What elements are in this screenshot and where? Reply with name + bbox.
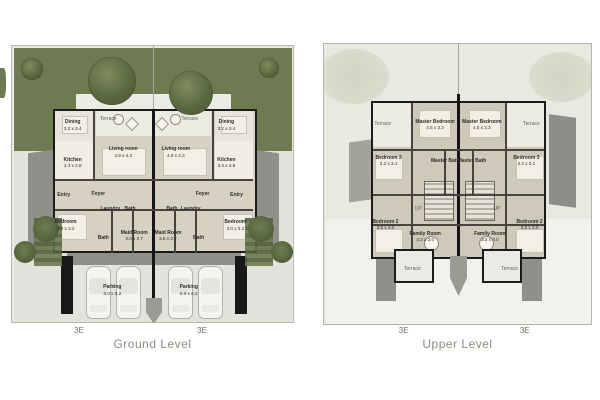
- room-label: Bedroom 33.2 x 3.1: [513, 155, 539, 167]
- room-label: Entry: [57, 192, 70, 198]
- room-label: Bath: [98, 234, 109, 240]
- unit-marker: 3E: [74, 326, 84, 335]
- room-label: Kitchen3.3 x 2.8: [64, 157, 82, 169]
- room-label: Master Bedroom4.5 x 3.3: [462, 119, 501, 131]
- room-label: Foyer: [196, 191, 210, 197]
- upper-level-caption: Upper Level: [323, 337, 592, 351]
- room-label: UP: [415, 206, 422, 212]
- room-label: Bedroom 23.5 x 3.0: [517, 219, 543, 231]
- upper-level-plan: TerraceMaster Bedroom4.5 x 3.3Master Bed…: [323, 43, 592, 325]
- room-label: Maid Room3.5 x 2.7: [154, 230, 181, 242]
- room-label: Terrace: [182, 115, 199, 121]
- room-label: Living room4.9 x 4.3: [109, 146, 138, 158]
- room-label: Bath: [166, 206, 177, 212]
- room-labels-layer: TerraceTerraceDining3.2 x 3.4Dining3.2 x…: [12, 46, 293, 322]
- room-label: Terrace: [404, 266, 421, 272]
- room-label: Terrace: [501, 266, 518, 272]
- room-label: UP: [493, 206, 500, 212]
- unit-marker: 3E: [520, 326, 530, 335]
- edge-foliage: [0, 68, 6, 98]
- room-label: Master Bath: [458, 158, 487, 164]
- room-label: Foyer: [91, 191, 105, 197]
- room-label: Dining3.2 x 3.4: [218, 119, 236, 131]
- room-label: Bedroom 33.2 x 3.1: [376, 155, 402, 167]
- room-label: Bath: [124, 206, 135, 212]
- room-label: Parking6.0 x 6.2: [180, 284, 198, 296]
- room-label: Terrace: [523, 121, 540, 127]
- room-label: Family Room3.2 x 3.0: [409, 231, 440, 243]
- ground-level-plan: TerraceTerraceDining3.2 x 3.4Dining3.2 x…: [11, 45, 294, 323]
- room-label: Living room4.9 x 4.3: [162, 146, 191, 158]
- unit-marker: 3E: [197, 326, 207, 335]
- room-label: Kitchen3.3 x 2.8: [217, 157, 235, 169]
- room-label: Master Bath: [431, 158, 460, 164]
- unit-marker: 3E: [399, 326, 409, 335]
- ground-level-caption: Ground Level: [11, 337, 294, 351]
- room-label: Terrace: [374, 121, 391, 127]
- room-label: Bath: [193, 234, 204, 240]
- room-label: Laundry: [100, 206, 120, 212]
- room-label: Bedroom3.0 x 3.2: [224, 219, 246, 231]
- room-label: Parking6.0 x 6.2: [103, 284, 121, 296]
- ground-level-footer: 3E3E Ground Level: [11, 326, 294, 356]
- room-label: Master Bedroom4.5 x 3.3: [415, 119, 454, 131]
- room-label: Entry: [230, 192, 243, 198]
- room-label: Dining3.2 x 3.4: [64, 119, 82, 131]
- room-label: Family Room3.2 x 3.0: [474, 231, 505, 243]
- floor-plan-sheet: TerraceTerraceDining3.2 x 3.4Dining3.2 x…: [0, 0, 600, 400]
- upper-level-footer: 3E3E Upper Level: [323, 326, 592, 356]
- room-label: Terrace: [100, 115, 117, 121]
- room-labels-layer: TerraceMaster Bedroom4.5 x 3.3Master Bed…: [324, 44, 591, 324]
- room-label: Bedroom3.0 x 3.2: [55, 219, 77, 231]
- room-label: Maid Room3.5 x 2.7: [121, 230, 148, 242]
- room-label: Laundry: [181, 206, 201, 212]
- room-label: Bedroom 23.5 x 3.0: [372, 219, 398, 231]
